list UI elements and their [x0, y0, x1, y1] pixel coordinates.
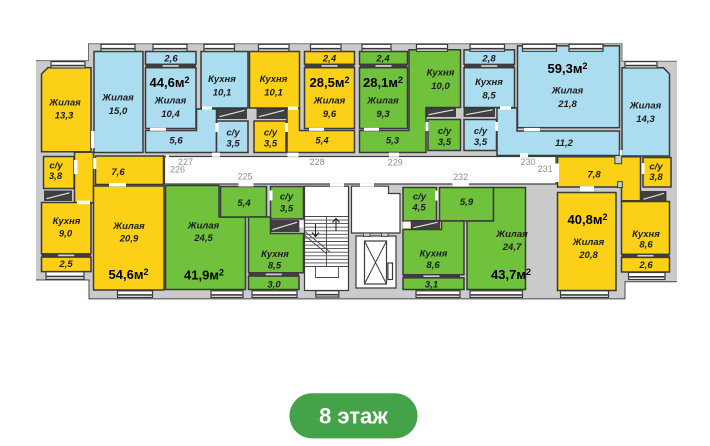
svg-text:Жилая: Жилая: [101, 93, 134, 104]
svg-text:Жилая: Жилая: [495, 229, 528, 240]
svg-text:24,5: 24,5: [193, 233, 213, 244]
svg-text:3,0: 3,0: [267, 280, 281, 291]
svg-text:8,6: 8,6: [426, 260, 440, 271]
svg-text:с/у: с/у: [438, 126, 452, 137]
svg-text:230: 230: [520, 157, 535, 167]
svg-text:10,0: 10,0: [431, 81, 450, 92]
svg-text:10,1: 10,1: [213, 88, 232, 99]
svg-text:5,4: 5,4: [237, 198, 251, 209]
svg-text:3,8: 3,8: [649, 172, 663, 183]
svg-text:Жилая: Жилая: [48, 98, 81, 109]
svg-text:231: 231: [538, 164, 553, 174]
svg-text:Жилая: Жилая: [154, 96, 187, 107]
svg-text:21,8: 21,8: [557, 99, 577, 110]
svg-text:2,8: 2,8: [481, 54, 496, 65]
svg-text:229: 229: [388, 157, 403, 167]
svg-text:2,6: 2,6: [163, 53, 178, 64]
svg-text:228: 228: [310, 157, 325, 167]
svg-text:5,9: 5,9: [460, 197, 474, 208]
svg-text:5,4: 5,4: [315, 136, 329, 147]
svg-text:20,8: 20,8: [578, 250, 598, 261]
svg-text:3,5: 3,5: [226, 139, 240, 150]
svg-text:24,7: 24,7: [502, 242, 522, 253]
svg-text:54,6м2: 54,6м2: [109, 267, 149, 282]
svg-text:9,0: 9,0: [59, 229, 73, 240]
svg-text:4,5: 4,5: [411, 203, 426, 214]
svg-text:13,3: 13,3: [55, 111, 74, 122]
svg-text:Жилая: Жилая: [187, 221, 220, 232]
svg-text:10,1: 10,1: [264, 88, 283, 99]
svg-text:3,8: 3,8: [49, 171, 63, 182]
svg-text:Жилая: Жилая: [313, 96, 346, 107]
svg-text:с/у: с/у: [264, 128, 278, 139]
svg-text:8,5: 8,5: [482, 91, 496, 102]
svg-text:с/у: с/у: [413, 192, 427, 203]
svg-text:Кухня: Кухня: [475, 77, 503, 88]
svg-text:59,3м2: 59,3м2: [548, 61, 588, 76]
svg-text:226: 226: [170, 165, 185, 175]
svg-text:с/у: с/у: [474, 126, 488, 137]
svg-text:5,6: 5,6: [169, 136, 183, 147]
svg-text:Жилая: Жилая: [551, 86, 584, 97]
svg-text:9,6: 9,6: [323, 109, 337, 120]
svg-text:2,6: 2,6: [638, 260, 653, 271]
svg-text:Кухня: Кухня: [260, 74, 288, 85]
svg-text:3,5: 3,5: [264, 139, 278, 150]
svg-text:15,0: 15,0: [109, 106, 128, 117]
svg-text:с/у: с/у: [226, 128, 240, 139]
svg-text:Жилая: Жилая: [112, 221, 145, 232]
svg-text:с/у: с/у: [280, 192, 294, 203]
svg-text:232: 232: [453, 172, 468, 182]
svg-text:10,4: 10,4: [161, 109, 180, 120]
svg-text:43,7м2: 43,7м2: [491, 267, 531, 282]
svg-text:8 этаж: 8 этаж: [319, 404, 388, 429]
svg-text:2,4: 2,4: [375, 53, 390, 64]
svg-text:Кухня: Кухня: [261, 249, 289, 260]
svg-text:Жилая: Жилая: [366, 96, 399, 107]
svg-text:3,5: 3,5: [438, 137, 452, 148]
svg-text:Жилая: Жилая: [629, 101, 662, 112]
svg-text:8,6: 8,6: [639, 240, 653, 251]
svg-text:Кухня: Кухня: [208, 74, 236, 85]
svg-text:44,6м2: 44,6м2: [150, 75, 190, 90]
svg-text:8,5: 8,5: [268, 261, 282, 272]
svg-text:5,3: 5,3: [386, 136, 400, 147]
svg-text:7,6: 7,6: [111, 167, 125, 178]
svg-text:Кухня: Кухня: [53, 216, 81, 227]
svg-text:с/у: с/у: [49, 161, 63, 172]
svg-text:3,5: 3,5: [474, 137, 488, 148]
svg-text:11,2: 11,2: [555, 138, 574, 149]
svg-text:28,1м2: 28,1м2: [363, 75, 403, 90]
svg-text:41,9м2: 41,9м2: [184, 268, 224, 283]
svg-text:2,4: 2,4: [322, 53, 337, 64]
svg-text:Кухня: Кухня: [420, 249, 448, 260]
svg-text:28,5м2: 28,5м2: [310, 75, 350, 90]
svg-text:14,3: 14,3: [636, 114, 655, 125]
svg-text:20,9: 20,9: [119, 234, 139, 245]
svg-text:с/у: с/у: [649, 162, 663, 173]
svg-text:225: 225: [238, 171, 253, 181]
svg-text:9,3: 9,3: [376, 109, 390, 120]
svg-text:Кухня: Кухня: [632, 229, 660, 240]
svg-text:Жилая: Жилая: [572, 237, 605, 248]
svg-text:2,5: 2,5: [58, 259, 73, 270]
svg-text:40,8м2: 40,8м2: [568, 212, 608, 227]
svg-text:3,5: 3,5: [280, 204, 294, 215]
svg-text:Кухня: Кухня: [427, 68, 455, 79]
svg-text:7,8: 7,8: [587, 170, 601, 181]
svg-text:3,1: 3,1: [425, 280, 438, 291]
